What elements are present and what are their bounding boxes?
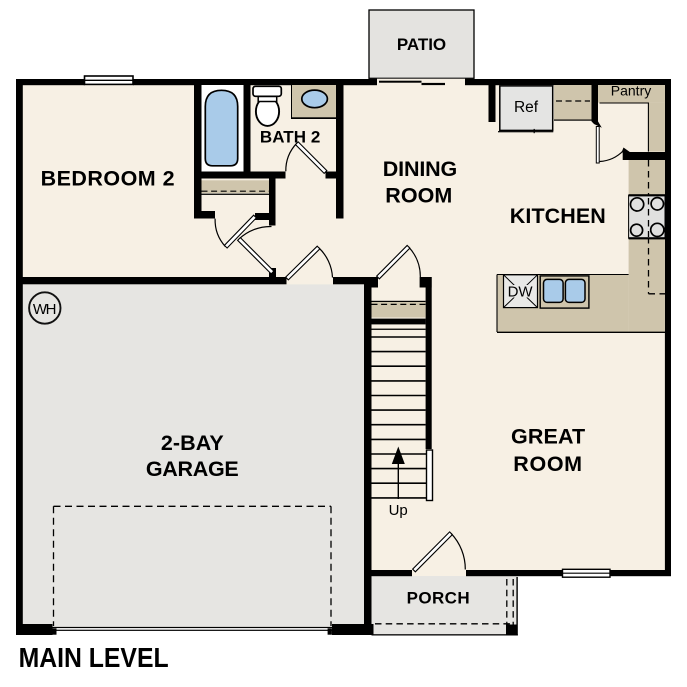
svg-text:WH: WH <box>33 301 57 318</box>
svg-text:BEDROOM 2: BEDROOM 2 <box>41 167 175 191</box>
svg-text:GARAGE: GARAGE <box>146 457 239 481</box>
svg-text:DINING: DINING <box>383 157 458 181</box>
svg-text:ROOM: ROOM <box>385 183 452 207</box>
svg-text:Up: Up <box>389 502 408 519</box>
svg-text:Ref: Ref <box>514 99 539 116</box>
svg-text:PATIO: PATIO <box>397 35 446 54</box>
svg-text:MAIN LEVEL: MAIN LEVEL <box>19 642 169 673</box>
svg-text:DW: DW <box>508 284 534 301</box>
svg-text:PORCH: PORCH <box>407 589 470 608</box>
svg-text:ROOM: ROOM <box>513 452 582 476</box>
svg-text:GREAT: GREAT <box>511 424 585 448</box>
svg-text:Pantry: Pantry <box>611 83 651 99</box>
svg-text:KITCHEN: KITCHEN <box>510 204 606 228</box>
svg-text:BATH 2: BATH 2 <box>260 128 321 147</box>
svg-text:2-BAY: 2-BAY <box>161 431 224 455</box>
